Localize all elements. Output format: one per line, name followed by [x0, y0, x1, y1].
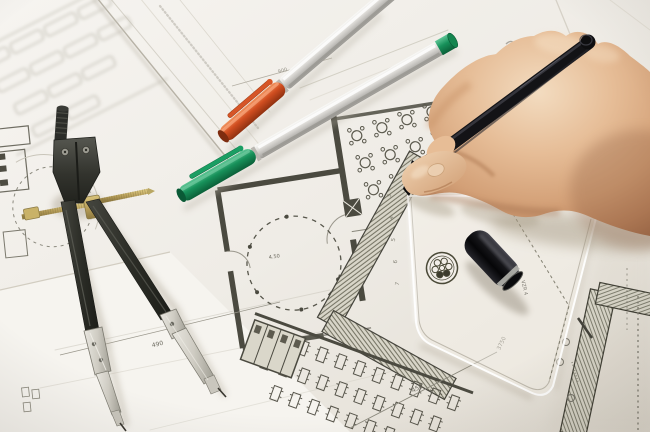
- dark-plan-box: [343, 198, 362, 217]
- photo-stage: 4.50 450 3750 490 900: [0, 0, 650, 432]
- pen-top: [581, 35, 596, 50]
- compass-stem: [54, 105, 69, 142]
- scene-svg: 4.50 450 3750 490 900: [0, 0, 650, 432]
